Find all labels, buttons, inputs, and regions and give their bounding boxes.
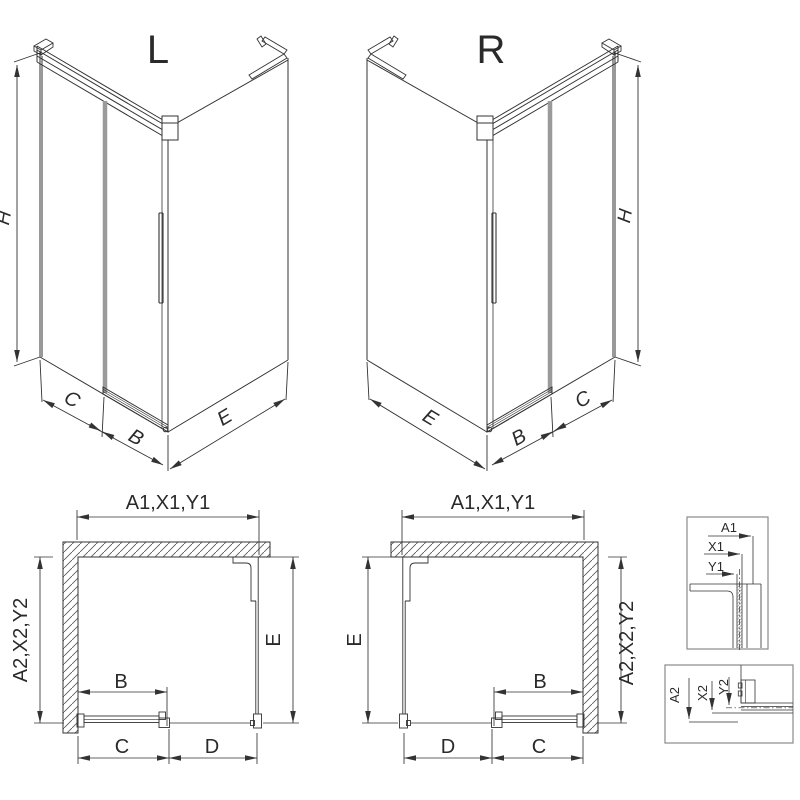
shower-enclosure-technical-drawing: L H C B E R H E B C A1,X1,Y1 A2,X2,Y2 E …: [0, 0, 800, 800]
dim-label-e-plan-left: E: [263, 633, 285, 646]
dim-label-e-plan-right: E: [344, 633, 366, 646]
dim-label-c-plan-right: C: [532, 736, 546, 758]
dim-label-a2-detail: A2: [667, 687, 682, 703]
iso-view-right-geometry: [367, 36, 641, 471]
dim-label-depth-group-plan-right: A2,X2,Y2: [616, 601, 638, 686]
dim-label-x1-detail: X1: [708, 539, 724, 554]
wall-hatch-left-plan: [63, 542, 270, 733]
dim-label-e-iso-left: E: [214, 405, 237, 431]
door-profile-section: [741, 680, 755, 703]
dim-label-c-iso-right: C: [571, 386, 595, 413]
dim-label-c-iso-left: C: [60, 387, 84, 414]
drawing-canvas: L H C B E R H E B C A1,X1,Y1 A2,X2,Y2 E …: [0, 0, 800, 800]
dim-label-y1-detail: Y1: [708, 559, 724, 574]
wall-profile-section: [690, 584, 761, 648]
dim-label-height-left: H: [0, 209, 16, 226]
variant-title-right: R: [477, 28, 506, 72]
dim-label-b-plan-right: B: [533, 671, 546, 693]
dim-label-width-group-plan-left: A1,X1,Y1: [126, 492, 211, 514]
dim-label-d-plan-right: D: [441, 736, 455, 758]
dim-label-e-iso-right: E: [419, 405, 442, 431]
dim-label-y2-detail: Y2: [716, 679, 731, 695]
iso-view-left-geometry: [14, 36, 288, 471]
dim-label-depth-group-plan-left: A2,X2,Y2: [10, 598, 32, 683]
variant-title-left: L: [147, 28, 169, 72]
dim-label-a1-detail: A1: [721, 520, 737, 535]
door-profile-lug: [738, 683, 742, 688]
dim-label-b-iso-right: B: [508, 425, 530, 451]
dim-label-x2-detail: X2: [695, 685, 710, 701]
wall-hatch-right-plan: [391, 542, 598, 733]
dim-label-b-plan-left: B: [114, 671, 127, 693]
dim-label-d-plan-left: D: [205, 736, 219, 758]
dim-label-height-right: H: [614, 207, 637, 224]
door-profile-lug: [738, 691, 742, 696]
detail-bottom-profile: [665, 665, 793, 743]
dim-label-b-iso-left: B: [125, 425, 147, 451]
detail-top-profile: [687, 517, 768, 651]
detail-top-frame: [687, 517, 768, 649]
dim-label-c-plan-left: C: [115, 736, 129, 758]
dim-label-width-group-plan-right: A1,X1,Y1: [451, 492, 536, 514]
drawing-root: L H C B E R H E B C A1,X1,Y1 A2,X2,Y2 E …: [0, 28, 793, 764]
